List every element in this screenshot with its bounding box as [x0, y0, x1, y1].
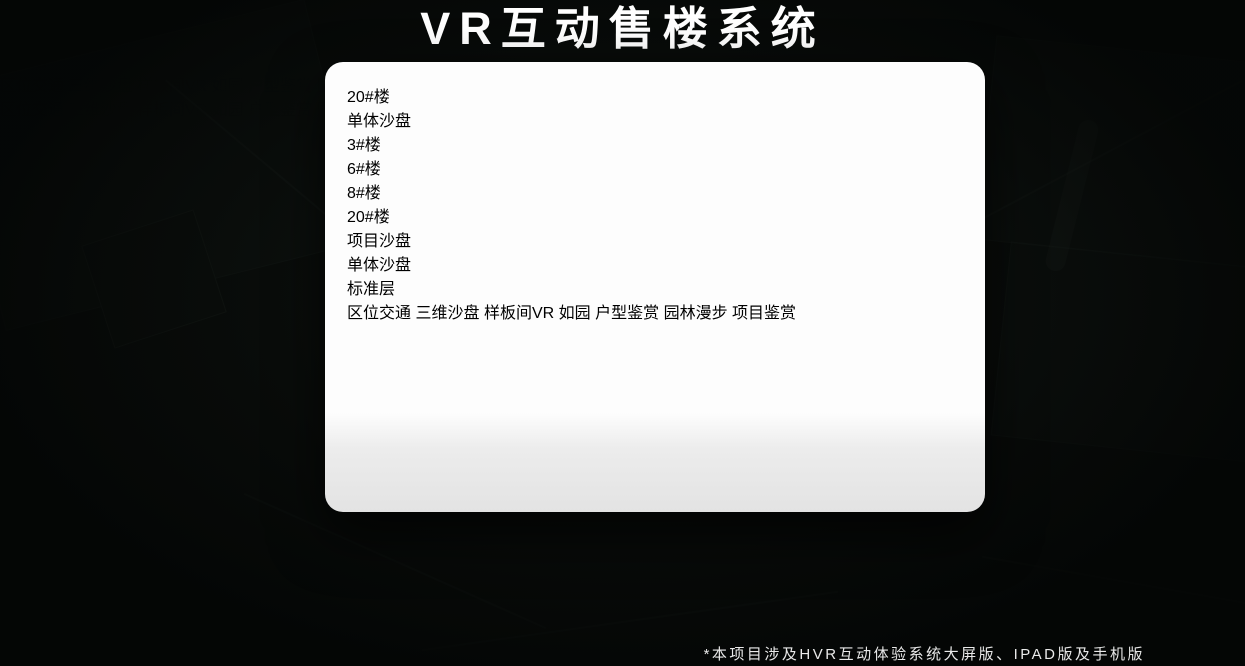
nav-item-floorplan[interactable]: 户型鉴赏: [595, 305, 659, 322]
brand-logo-text: 如园: [559, 305, 591, 322]
building-heading: 20#楼: [347, 83, 963, 107]
building-subtitle-vertical: 单体沙盘: [347, 107, 963, 131]
tab-project-sandtable[interactable]: 项目沙盘: [347, 227, 963, 251]
nav-item-garden-walk[interactable]: 园林漫步: [664, 305, 728, 322]
nav-item-3d-sandtable[interactable]: 三维沙盘: [415, 305, 479, 322]
building-number: 20: [347, 89, 365, 106]
footnote-caption: *本项目涉及HVR互动体验系统大屏版、IPAD版及手机版: [704, 643, 1145, 664]
floor-button-3[interactable]: 3#楼: [347, 131, 963, 155]
floor-button-8[interactable]: 8#楼: [347, 179, 963, 203]
building-number-suffix: #楼: [365, 89, 390, 106]
stage: VR互动售楼系统 20#楼 单体沙盘: [0, 0, 1245, 666]
page-title: VR互动售楼系统: [0, 0, 1245, 58]
tab-standard-floor[interactable]: 标准层: [347, 275, 963, 299]
bottom-nav-bar: 区位交通 三维沙盘 样板间VR 如园 户型鉴赏 园林漫步 项目鉴赏: [347, 299, 963, 323]
floor-button-6[interactable]: 6#楼: [347, 155, 963, 179]
nav-item-location-transport[interactable]: 区位交通: [347, 305, 411, 322]
nav-item-project-gallery[interactable]: 项目鉴赏: [732, 305, 796, 322]
floor-button-20[interactable]: 20#楼: [347, 203, 963, 227]
brand-logo: 如园: [559, 305, 595, 322]
tab-single-sandtable[interactable]: 单体沙盘: [347, 251, 963, 275]
floor-button-group: 3#楼 6#楼 8#楼 20#楼: [347, 131, 963, 227]
nav-item-showroom-vr[interactable]: 样板间VR: [484, 305, 554, 322]
view-tab-row: 项目沙盘 单体沙盘 标准层: [347, 227, 963, 299]
desktop-monitor: 20#楼 单体沙盘: [325, 62, 985, 512]
monitor-app: 20#楼 单体沙盘: [347, 83, 963, 323]
monitor-screen: 20#楼 单体沙盘: [347, 83, 963, 431]
